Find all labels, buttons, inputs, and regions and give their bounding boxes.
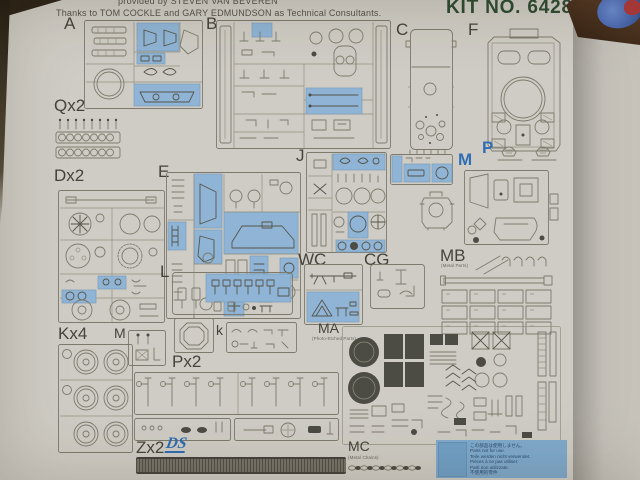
sprue-mb-drawing <box>440 250 556 334</box>
credit-line-1: provided by STEVEN VAN BEVEREN <box>118 0 278 6</box>
instruction-sheet: provided by STEVEN VAN BEVEREN Thanks to… <box>0 0 575 480</box>
sprue-m-drawing <box>462 168 560 248</box>
sprue-d-label: Dx2 <box>54 166 84 186</box>
sprue-ma-label: MA <box>318 320 339 336</box>
sprue-j-strip-drawing <box>390 148 454 186</box>
sprue-px2-label: Px2 <box>172 352 201 372</box>
note-line-zh: 不使用的零件 <box>470 470 531 475</box>
sprue-b-drawing <box>216 20 392 150</box>
sprue-l-label: L <box>160 262 169 282</box>
sprue-m-small-label: M <box>114 325 126 341</box>
background-object-red <box>624 0 640 15</box>
sprue-kx4-drawing <box>58 344 134 454</box>
ds-logo: DS <box>165 436 188 453</box>
sprue-a-label: A <box>64 14 75 34</box>
sprue-px2-drawing <box>132 370 344 446</box>
sprue-k-label: k <box>216 322 223 338</box>
gun-mantlet-drawing <box>418 190 456 230</box>
sprue-m-small-drawing <box>128 330 166 366</box>
sprue-f-label: F <box>468 20 478 40</box>
sprue-ma-drawing <box>342 326 564 446</box>
sprue-q-drawing <box>52 118 124 166</box>
sprue-cg-drawing <box>370 264 428 312</box>
sprue-wc-drawing <box>304 264 364 326</box>
sprue-j-label: J <box>296 146 305 166</box>
sprue-p-label: P <box>482 138 493 158</box>
table-surface-gray <box>573 0 640 480</box>
sprue-k-drawing <box>226 322 298 354</box>
sprue-c-drawing <box>404 27 460 153</box>
sprue-q-label: Qx2 <box>54 96 85 116</box>
sprue-mc-label: MC <box>348 438 370 454</box>
kit-number: KIT NO. 6428 <box>446 0 573 19</box>
sprue-f-drawing <box>480 27 566 155</box>
parts-not-for-use-note: この部品は使用しません。 Parts not for use. Teile we… <box>436 440 567 478</box>
blue-highlight-swatch <box>438 442 467 477</box>
sprue-j-drawing <box>306 152 388 254</box>
sprue-p-drawing <box>496 140 558 166</box>
ds-track-strip <box>136 457 346 474</box>
sprue-m-label: M <box>458 150 472 170</box>
chain-drawing <box>346 463 428 473</box>
sprue-mc-sublabel: (Metal Chains) <box>348 455 379 460</box>
sprue-zx2-label: Zx2 <box>136 438 164 458</box>
credit-line-2: Thanks to TOM COCKLE and GARY EDMUNDSON … <box>56 8 381 18</box>
photo-of-instruction-sheet: provided by STEVEN VAN BEVEREN Thanks to… <box>0 0 640 480</box>
sprue-d-drawing <box>58 190 166 324</box>
sprue-kx4-label: Kx4 <box>58 324 87 344</box>
sprue-a-drawing <box>84 20 204 110</box>
